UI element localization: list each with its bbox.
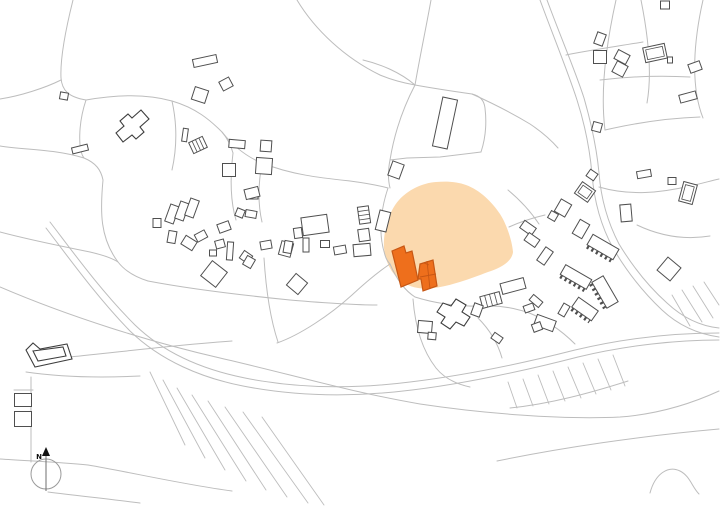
building (500, 278, 526, 295)
building-outline (531, 322, 542, 333)
building-outline (15, 412, 32, 427)
site-plan-page: N (0, 0, 720, 510)
field-strip-line (208, 401, 266, 490)
building (181, 235, 197, 250)
building (471, 303, 484, 317)
building (523, 303, 535, 313)
building-outline (560, 265, 591, 290)
building-outline (217, 221, 231, 234)
north-arrowhead (42, 447, 50, 456)
building-outline (594, 32, 607, 46)
field-strip-line (262, 417, 324, 505)
building (679, 182, 698, 205)
building-outline (255, 157, 272, 174)
building (226, 242, 233, 260)
building-outline (72, 144, 89, 154)
parcel-line (86, 96, 233, 153)
building (260, 140, 272, 152)
building-outline (587, 234, 619, 259)
building-outline (260, 140, 272, 152)
building-outline (223, 164, 236, 177)
parcel-line (363, 60, 415, 85)
building (15, 394, 32, 407)
parcel-line (222, 132, 388, 188)
building-outline (191, 87, 208, 104)
building (235, 208, 245, 218)
building (182, 128, 189, 142)
parcel-line (497, 429, 719, 461)
building (679, 91, 697, 103)
building (217, 221, 231, 234)
field-strip-line (150, 372, 185, 445)
building (586, 234, 619, 261)
building (191, 87, 208, 104)
building (321, 241, 330, 248)
building-outline (210, 250, 217, 256)
field-strip-line (508, 382, 517, 408)
building-outline (668, 57, 673, 63)
north-arrow: N (31, 447, 61, 491)
parcel-line (48, 492, 140, 503)
building (571, 297, 599, 322)
field-strip-line (538, 375, 549, 404)
building-outline (219, 77, 233, 91)
parcel-line (650, 469, 699, 494)
building (418, 320, 433, 333)
building-outline (523, 303, 535, 313)
building-outline (688, 61, 702, 74)
building (590, 276, 618, 309)
field-strip-line (523, 379, 533, 406)
building (358, 228, 371, 241)
building (59, 92, 68, 100)
parcel-line (0, 232, 118, 262)
building-outline (181, 235, 197, 250)
building (668, 178, 676, 185)
building-outline (153, 219, 161, 228)
building-outline (245, 210, 257, 219)
building (688, 61, 702, 74)
building (219, 77, 233, 91)
building (286, 273, 307, 294)
field-strip-line (704, 282, 719, 305)
building-outline (388, 161, 404, 179)
parcel-line (472, 94, 558, 148)
building (283, 240, 293, 253)
parcel-line (390, 152, 481, 160)
building-outline (260, 240, 272, 250)
building (353, 243, 371, 256)
building-outline (358, 228, 371, 241)
building (260, 240, 272, 250)
building (255, 157, 272, 174)
building (201, 261, 228, 288)
building-outline (524, 233, 540, 248)
building (586, 169, 598, 181)
building-outline (192, 55, 217, 68)
building-outline (182, 128, 189, 142)
building (357, 206, 370, 224)
cross-building-church (116, 110, 149, 142)
field-strip-line (243, 412, 308, 503)
building-outline (226, 242, 233, 260)
building-outline (301, 214, 329, 235)
parcel-line (148, 281, 377, 305)
parcel-line (0, 80, 61, 99)
building-outline (668, 178, 676, 185)
parcel-line (26, 372, 140, 377)
building-outline (333, 245, 346, 255)
building (210, 250, 217, 256)
parcel-line (264, 258, 278, 342)
building (572, 219, 590, 238)
building (15, 412, 32, 427)
building-outline (353, 243, 371, 256)
building (559, 265, 591, 291)
building-outline (194, 230, 207, 242)
building-outline (491, 332, 503, 343)
building (657, 257, 681, 281)
field-strip-line (613, 355, 625, 386)
building-outline (558, 303, 570, 317)
building-outline (293, 227, 302, 238)
building (636, 169, 651, 178)
building (229, 139, 246, 148)
building (293, 227, 302, 238)
building-outline (537, 247, 554, 265)
building (537, 247, 554, 265)
building (594, 32, 607, 46)
building-outline (520, 220, 537, 235)
building-outline (592, 276, 618, 308)
building (189, 136, 208, 153)
building-outline (679, 91, 697, 103)
building (215, 239, 226, 249)
building (72, 144, 89, 154)
building (301, 214, 329, 235)
building-outline (574, 182, 595, 203)
building (620, 204, 632, 222)
parcel-line (600, 76, 690, 80)
building (661, 1, 670, 9)
parcel-line (599, 179, 719, 193)
building-outline (471, 303, 484, 317)
building (524, 233, 540, 248)
parcel-line (415, 0, 431, 85)
field-strip-line (225, 407, 287, 497)
parcel-line (695, 0, 703, 118)
building (531, 322, 542, 333)
building-outline (303, 238, 309, 252)
building-outline (500, 278, 526, 295)
parcel-line (46, 228, 719, 395)
field-strip-line (598, 359, 611, 390)
site-plan-svg: N (0, 0, 720, 510)
building-outline (59, 92, 68, 100)
building (303, 238, 309, 252)
building-outline (185, 198, 200, 218)
building-outline (15, 394, 32, 407)
building (245, 210, 257, 219)
building-outline (657, 257, 681, 281)
parcel-line (84, 158, 148, 281)
field-strip-line (192, 395, 246, 481)
parcel-line (510, 381, 628, 408)
building (574, 182, 595, 203)
parcel-line (603, 0, 616, 130)
field-strip-line (177, 388, 225, 470)
building (192, 55, 217, 68)
building-outline (167, 230, 177, 243)
building (491, 332, 503, 343)
building-outline (235, 208, 245, 218)
building-outline (432, 97, 457, 149)
building-outline (572, 219, 590, 238)
field-strip-line (163, 380, 205, 458)
strips-layer (150, 282, 719, 505)
building-outline (636, 169, 651, 178)
building (643, 43, 668, 62)
building-outline (620, 204, 632, 222)
building-outline (586, 169, 598, 181)
parcel-line (508, 190, 539, 224)
building-outline (286, 273, 307, 294)
field-strip-line (568, 367, 581, 398)
building (153, 219, 161, 228)
building (520, 220, 537, 235)
building-outline (215, 239, 226, 249)
building (333, 245, 346, 255)
parcel-line (605, 117, 700, 130)
building (558, 303, 570, 317)
parcel-line (61, 0, 86, 100)
field-strip-line (583, 363, 596, 394)
building-outline (201, 261, 228, 288)
building (428, 332, 437, 340)
parcel-line (637, 225, 710, 238)
building (194, 230, 207, 242)
building-outline (591, 121, 602, 132)
building-outline (321, 241, 330, 248)
building-outline (418, 320, 433, 333)
field-strip-line (553, 371, 565, 401)
building (432, 97, 457, 149)
building (594, 51, 607, 64)
field-strip-line (672, 295, 690, 326)
building-outline (428, 332, 437, 340)
building (668, 57, 673, 63)
parcel-line (415, 297, 527, 312)
building-outline (283, 240, 293, 253)
building (167, 230, 177, 243)
building-outline (661, 1, 670, 9)
parcel-line (172, 101, 176, 170)
building (591, 121, 602, 132)
building-outline (229, 139, 246, 148)
building (185, 198, 200, 218)
building (223, 164, 236, 177)
building (388, 161, 404, 179)
building-outline (594, 51, 607, 64)
